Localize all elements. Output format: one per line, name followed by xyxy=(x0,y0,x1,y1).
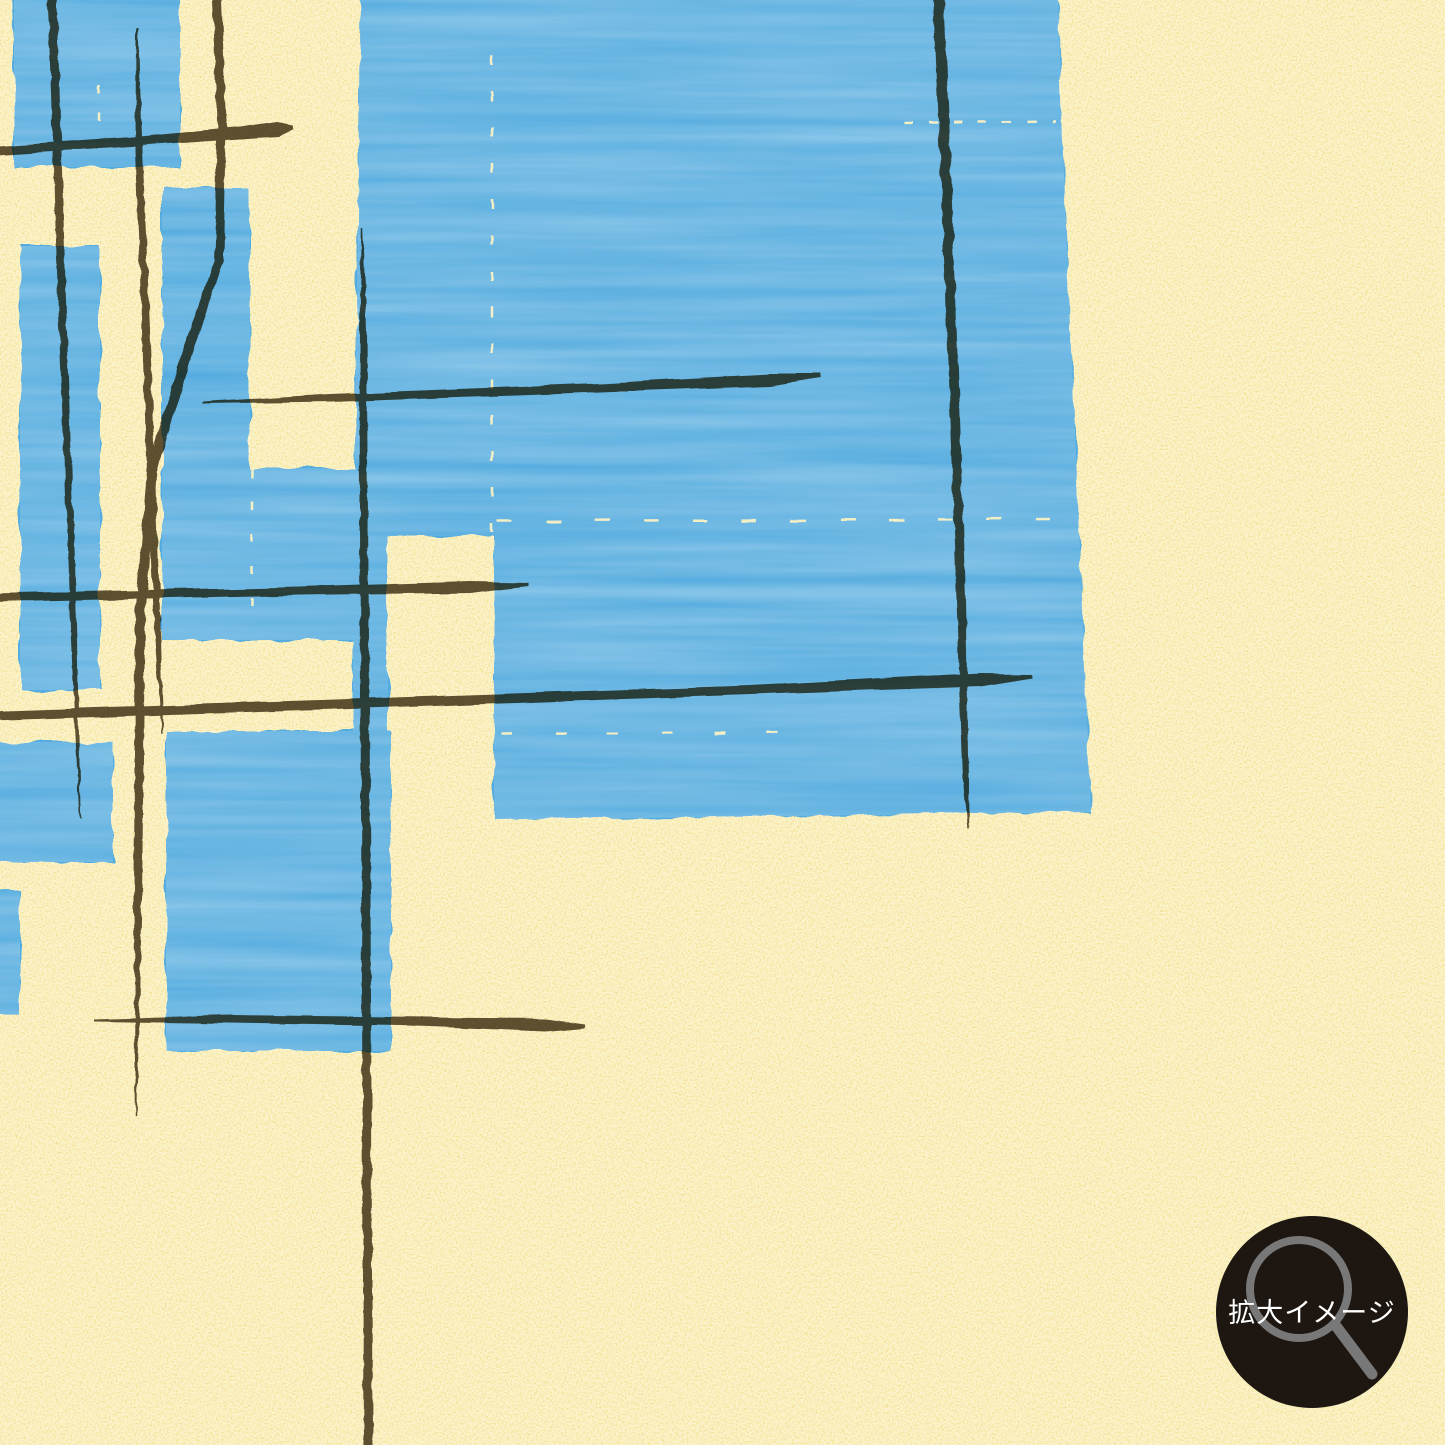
artwork-canvas: 拡大イメージ xyxy=(0,0,1445,1445)
zoom-badge: 拡大イメージ xyxy=(1216,1216,1408,1408)
badge-label: 拡大イメージ xyxy=(1228,1298,1395,1329)
enlarged-image-preview: 拡大イメージ xyxy=(0,0,1445,1445)
